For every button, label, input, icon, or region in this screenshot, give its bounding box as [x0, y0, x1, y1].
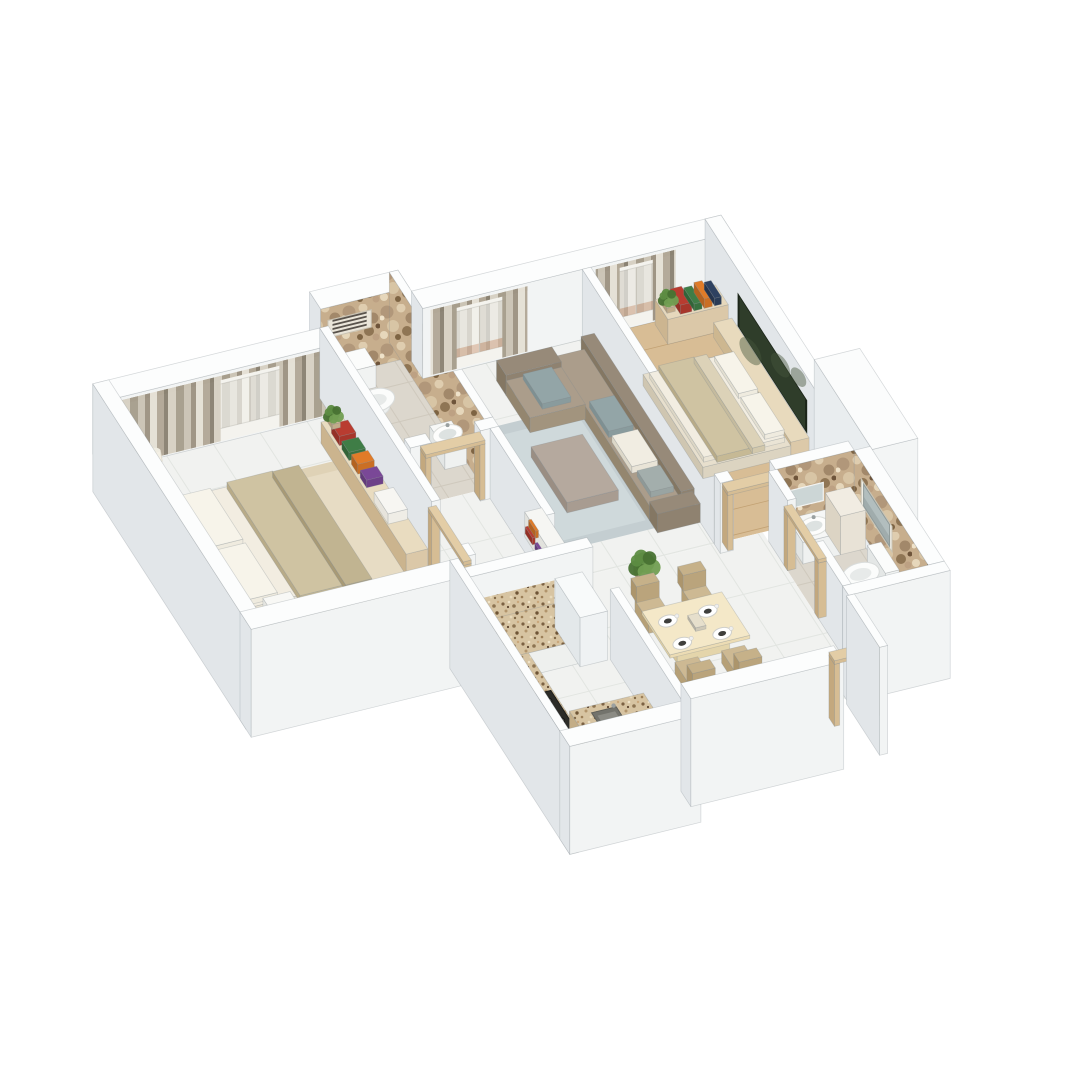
- floorplan-stage: [0, 0, 1080, 1080]
- dining-chair-far-2-back: [678, 561, 706, 591]
- dining-chair-far-1-back: [631, 573, 659, 603]
- floorplan-3d-render: [0, 0, 1080, 1080]
